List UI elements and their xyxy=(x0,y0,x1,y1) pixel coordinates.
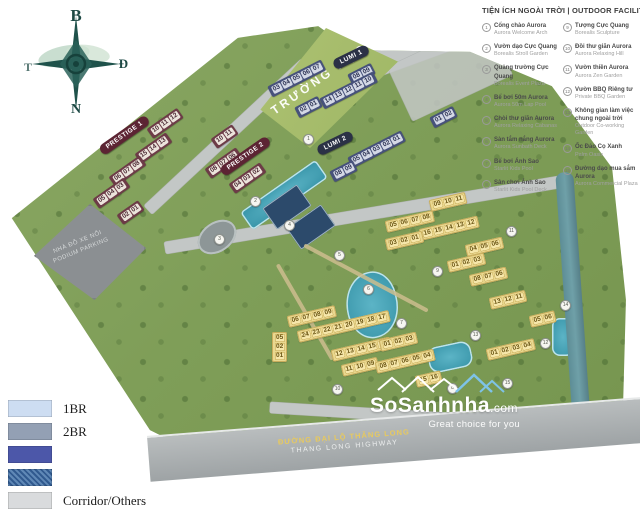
facility-text: Sân chơi Ánh SaoStarlit Kids Pool Deck xyxy=(494,179,547,194)
building-unit-tag: 03 xyxy=(471,255,483,265)
facility-item: 15Đường dạo mua sắm AuroraAurora Commerc… xyxy=(563,165,638,188)
facility-name-en: Borealis Event Plaza xyxy=(494,81,557,88)
amenity-marker: 13 xyxy=(470,330,481,341)
facilities-columns: 1Cổng chào AuroraAurora Welcome Arch2Vườ… xyxy=(482,22,638,200)
facility-name-vn: Quảng trường Cực Quang xyxy=(494,64,557,80)
facility-name-en: Outdoor Co-working Garden xyxy=(575,123,638,137)
facility-text: Vườn thiền AuroraAurora Zen Garden xyxy=(575,64,628,79)
building-unit-tag: 08 xyxy=(378,361,390,371)
facility-name-vn: Bể bơi Ánh Sao xyxy=(494,158,539,166)
building-unit-tag: 07 xyxy=(482,272,494,282)
facility-name-vn: Không gian làm việc chung ngoài trời xyxy=(575,107,638,123)
building-unit-tag: 13 xyxy=(492,297,504,307)
legend-swatch xyxy=(8,492,52,509)
amenity-marker: 6 xyxy=(363,284,374,295)
legend-row: 1BR xyxy=(8,400,146,417)
facility-name-en: Aurora Relaxing Cabanas xyxy=(494,123,557,130)
building-unit-tag: 06 xyxy=(489,239,501,249)
facility-number-badge: 7 xyxy=(482,159,491,168)
building-unit-tag: 04 xyxy=(521,341,533,351)
building-unit-tag: 10 xyxy=(442,197,454,207)
building-unit-tag: 02 xyxy=(460,258,472,268)
building-unit-tag: 22 xyxy=(321,325,333,335)
building-unit-tag: 15 xyxy=(366,342,378,352)
watermark-brand-text: SoSanhnha xyxy=(370,394,490,417)
facility-name-en: Aurora 50m Lap Pool xyxy=(494,102,548,109)
facility-item: 4Bể bơi 50m AuroraAurora 50m Lap Pool xyxy=(482,94,557,109)
building-unit-tag: 07 xyxy=(388,359,400,369)
building-unit-tag: 09 xyxy=(322,308,334,318)
facility-item: 1Cổng chào AuroraAurora Welcome Arch xyxy=(482,22,557,37)
facility-name-vn: Vườn BBQ Riêng tư xyxy=(575,86,633,94)
amenity-marker: 14 xyxy=(560,300,571,311)
facility-name-vn: Bể bơi 50m Aurora xyxy=(494,94,548,102)
building-unit-tag: 01 xyxy=(489,348,501,358)
facility-name-vn: Sân chơi Ánh Sao xyxy=(494,179,547,187)
facility-text: Ốc Đảo Cọ XanhPalm Oasis xyxy=(575,143,622,158)
outdoor-facilities-panel: TIỆN ÍCH NGOÀI TRỜI | OUTDOOR FACILITIES… xyxy=(482,6,638,200)
facilities-column: 9Tượng Cực QuangBorealis Sculpture10Đồi … xyxy=(563,22,638,200)
facility-number-badge: 3 xyxy=(482,65,491,74)
building-unit-tag: 01 xyxy=(390,133,403,145)
facility-name-en: Aurora Welcome Arch xyxy=(494,30,547,37)
masterplan-screenshot: TRƯỜNG HỌC NHÀ ĐỖ XE NỔI PODIUM PARKING … xyxy=(0,0,640,522)
building-unit-tag: 06 xyxy=(398,218,410,228)
facility-name-en: Aurora Sunbath Deck xyxy=(494,144,554,151)
facility-name-en: Aurora Relaxing Hill xyxy=(575,51,631,58)
facility-number-badge: 15 xyxy=(563,166,572,175)
amenity-marker: 12 xyxy=(540,338,551,349)
facility-number-badge: 4 xyxy=(482,95,491,104)
building-unit-tag: 03 xyxy=(403,334,415,344)
watermark: SoSanhnha.com Great choice for you xyxy=(370,372,520,430)
facility-name-vn: Đường dạo mua sắm Aurora xyxy=(575,165,638,181)
building-unit-tag: 11 xyxy=(453,194,464,204)
building-unit-tag: 07 xyxy=(300,313,312,323)
facility-name-en: Starlit Kids Pool xyxy=(494,166,539,173)
unit-type-legend: 1BR2BRCorridor/Others xyxy=(8,400,146,509)
amenity-marker: 10 xyxy=(332,384,343,395)
facility-name-vn: Chòi thư giãn Aurora xyxy=(494,115,557,123)
legend-row xyxy=(8,469,146,486)
facility-number-badge: 2 xyxy=(482,44,491,53)
legend-row xyxy=(8,446,146,463)
building-unit-tag: 12 xyxy=(334,349,346,359)
building-unit-tag: 06 xyxy=(542,313,554,323)
facility-number-badge: 14 xyxy=(563,144,572,153)
facility-text: Bể bơi Ánh SaoStarlit Kids Pool xyxy=(494,158,539,173)
building-unit-tag: 23 xyxy=(310,328,322,338)
legend-label: 1BR xyxy=(63,401,87,417)
building-unit-tag: 08 xyxy=(472,274,484,284)
building-unit-tag: 03 xyxy=(510,343,522,353)
watermark-tagline: Great choice for you xyxy=(370,419,520,430)
legend-swatch xyxy=(8,400,52,417)
building-unit-tag: 11 xyxy=(344,364,355,374)
building-unit-tag: 01 xyxy=(409,233,421,243)
building-unit-tag: 06 xyxy=(399,356,411,366)
facility-text: Quảng trường Cực QuangBorealis Event Pla… xyxy=(494,64,557,87)
facility-item: 11Vườn thiền AuroraAurora Zen Garden xyxy=(563,64,638,79)
facility-text: Đồi thư giãn AuroraAurora Relaxing Hill xyxy=(575,43,631,58)
facility-text: Vườn dạo Cực QuangBorealis Stroll Garden xyxy=(494,43,557,58)
building-unit-tag: 05 xyxy=(532,315,544,325)
facility-text: Cổng chào AuroraAurora Welcome Arch xyxy=(494,22,547,37)
building-unit-tag: 04 xyxy=(421,351,433,361)
facility-number-badge: 5 xyxy=(482,116,491,125)
facility-text: Chòi thư giãn AuroraAurora Relaxing Caba… xyxy=(494,115,557,130)
building-unit-tag: 02 xyxy=(392,337,404,347)
amenity-marker: 4 xyxy=(284,220,295,231)
building-unit-tag: 11 xyxy=(513,292,524,302)
facility-text: Vườn BBQ Riêng tưPrivate BBQ Garden xyxy=(575,86,633,101)
amenity-marker: 2 xyxy=(250,196,261,207)
facility-name-vn: Đồi thư giãn Aurora xyxy=(575,43,631,51)
facility-item: 7Bể bơi Ánh SaoStarlit Kids Pool xyxy=(482,158,557,173)
building-unit-tag: 02 xyxy=(499,346,511,356)
building-unit-tag: 18 xyxy=(365,315,377,325)
facility-item: 8Sân chơi Ánh SaoStarlit Kids Pool Deck xyxy=(482,179,557,194)
facility-text: Bể bơi 50m AuroraAurora 50m Lap Pool xyxy=(494,94,548,109)
facility-text: Tượng Cực QuangBorealis Sculpture xyxy=(575,22,629,37)
facility-text: Sàn tắm nắng AuroraAurora Sunbath Deck xyxy=(494,136,554,151)
amenity-marker: 1 xyxy=(303,134,314,145)
building-unit-tag: 05 xyxy=(410,354,422,364)
building-unit-tag: 17 xyxy=(376,313,388,323)
building-unit-tag: 06 xyxy=(493,269,505,279)
building-unit-tag: 21 xyxy=(332,323,344,333)
facility-name-en: Aurora Zen Garden xyxy=(575,73,628,80)
facility-text: Đường dạo mua sắm AuroraAurora Commercia… xyxy=(575,165,638,188)
facility-item: 13Không gian làm việc chung ngoài trờiOu… xyxy=(563,107,638,137)
facility-name-en: Borealis Sculpture xyxy=(575,30,629,37)
facility-number-badge: 8 xyxy=(482,180,491,189)
legend-row: 2BR xyxy=(8,423,146,440)
amenity-marker: 3 xyxy=(214,234,225,245)
building-unit-tag: 12 xyxy=(465,218,477,228)
facility-name-vn: Cổng chào Aurora xyxy=(494,22,547,30)
facility-name-vn: Vườn dạo Cực Quang xyxy=(494,43,557,51)
legend-row: Corridor/Others xyxy=(8,492,146,509)
facility-number-badge: 10 xyxy=(563,44,572,53)
amenity-marker: 11 xyxy=(506,226,517,237)
building-unit-tag: 13 xyxy=(454,221,466,231)
facility-name-en: Palm Oasis xyxy=(575,152,622,159)
building-unit-tag: 06 xyxy=(290,315,302,325)
facilities-title: TIỆN ÍCH NGOÀI TRỜI | OUTDOOR FACILITIES xyxy=(482,6,638,15)
facility-item: 6Sàn tắm nắng AuroraAurora Sunbath Deck xyxy=(482,136,557,151)
building-unit-tag: 02 xyxy=(275,343,285,351)
building-unit-tag: 09 xyxy=(432,199,444,209)
amenity-marker: 9 xyxy=(432,266,443,277)
facility-item: 2Vườn dạo Cực QuangBorealis Stroll Garde… xyxy=(482,43,557,58)
amenity-marker: 7 xyxy=(396,318,407,329)
building-unit-tag: 08 xyxy=(420,213,432,223)
legend-label: 2BR xyxy=(63,424,87,440)
facility-name-en: Aurora Commercial Plaza xyxy=(575,181,638,188)
building-unit-tag: 20 xyxy=(343,320,355,330)
compass-west-label: T xyxy=(24,60,32,75)
compass-east-label: Đ xyxy=(119,56,128,72)
facility-item: 9Tượng Cực QuangBorealis Sculpture xyxy=(563,22,638,37)
highway-label: ĐƯỜNG ĐẠI LỘ THĂNG LONG THANG LONG HIGHW… xyxy=(277,426,411,458)
building-unit-tag: 05 xyxy=(478,242,490,252)
building-unit-tag: 10 xyxy=(362,74,375,86)
legend-swatch xyxy=(8,469,52,486)
building-unit-tag: 02 xyxy=(398,236,410,246)
building-unit-tag: 19 xyxy=(354,318,366,328)
building-unit-tag: 10 xyxy=(354,362,366,372)
building-unit-tag: 24 xyxy=(300,330,312,340)
watermark-brand: SoSanhnha.com xyxy=(370,394,520,418)
facility-name-en: Private BBQ Garden xyxy=(575,94,633,101)
facility-name-vn: Ốc Đảo Cọ Xanh xyxy=(575,143,622,151)
facility-item: 5Chòi thư giãn AuroraAurora Relaxing Cab… xyxy=(482,115,557,130)
facility-item: 3Quảng trường Cực QuangBorealis Event Pl… xyxy=(482,64,557,87)
building-unit-tag: 05 xyxy=(275,334,285,342)
facility-name-vn: Sàn tắm nắng Aurora xyxy=(494,136,554,144)
building-unit-tag: 08 xyxy=(311,310,323,320)
legend-swatch xyxy=(8,446,52,463)
amenity-marker: 5 xyxy=(334,250,345,261)
building-unit-tag: 01 xyxy=(275,352,285,360)
building-unit-tag: 16 xyxy=(422,228,434,238)
legend-label: Corridor/Others xyxy=(63,493,146,509)
house-roofs-icon xyxy=(376,372,506,394)
building-unit-tag: 07 xyxy=(409,215,421,225)
building-unit-tag: 13 xyxy=(344,347,356,357)
facility-name-en: Starlit Kids Pool Deck xyxy=(494,187,547,194)
building-row: 050201 xyxy=(272,332,287,362)
building-unit-tag: 15 xyxy=(432,226,444,236)
building-unit-tag: 01 xyxy=(382,339,394,349)
compass-south-label: N xyxy=(71,102,81,118)
facility-item: 10Đồi thư giãn AuroraAurora Relaxing Hil… xyxy=(563,43,638,58)
building-unit-tag: 05 xyxy=(388,220,400,230)
facility-number-badge: 11 xyxy=(563,65,572,74)
facility-number-badge: 13 xyxy=(563,108,572,117)
compass-north-label: B xyxy=(70,6,81,26)
compass-rose: B Đ N T xyxy=(22,6,130,118)
facility-item: 12Vườn BBQ Riêng tưPrivate BBQ Garden xyxy=(563,86,638,101)
building-unit-tag: 14 xyxy=(355,344,367,354)
facility-number-badge: 12 xyxy=(563,87,572,96)
watermark-tld: .com xyxy=(490,401,518,415)
building-unit-tag: 03 xyxy=(388,238,400,248)
building-unit-tag: 01 xyxy=(450,260,462,270)
facility-number-badge: 9 xyxy=(563,23,572,32)
facility-name-vn: Vườn thiền Aurora xyxy=(575,64,628,72)
facilities-column: 1Cổng chào AuroraAurora Welcome Arch2Vườ… xyxy=(482,22,557,200)
building-unit-tag: 14 xyxy=(443,223,455,233)
legend-swatch xyxy=(8,423,52,440)
facility-name-en: Borealis Stroll Garden xyxy=(494,51,557,58)
facility-text: Không gian làm việc chung ngoài trờiOutd… xyxy=(575,107,638,137)
facility-number-badge: 6 xyxy=(482,137,491,146)
facility-number-badge: 1 xyxy=(482,23,491,32)
facility-item: 14Ốc Đảo Cọ XanhPalm Oasis xyxy=(563,143,638,158)
facility-name-vn: Tượng Cực Quang xyxy=(575,22,629,30)
building-unit-tag: 07 xyxy=(310,62,323,74)
building-unit-tag: 12 xyxy=(502,295,514,305)
